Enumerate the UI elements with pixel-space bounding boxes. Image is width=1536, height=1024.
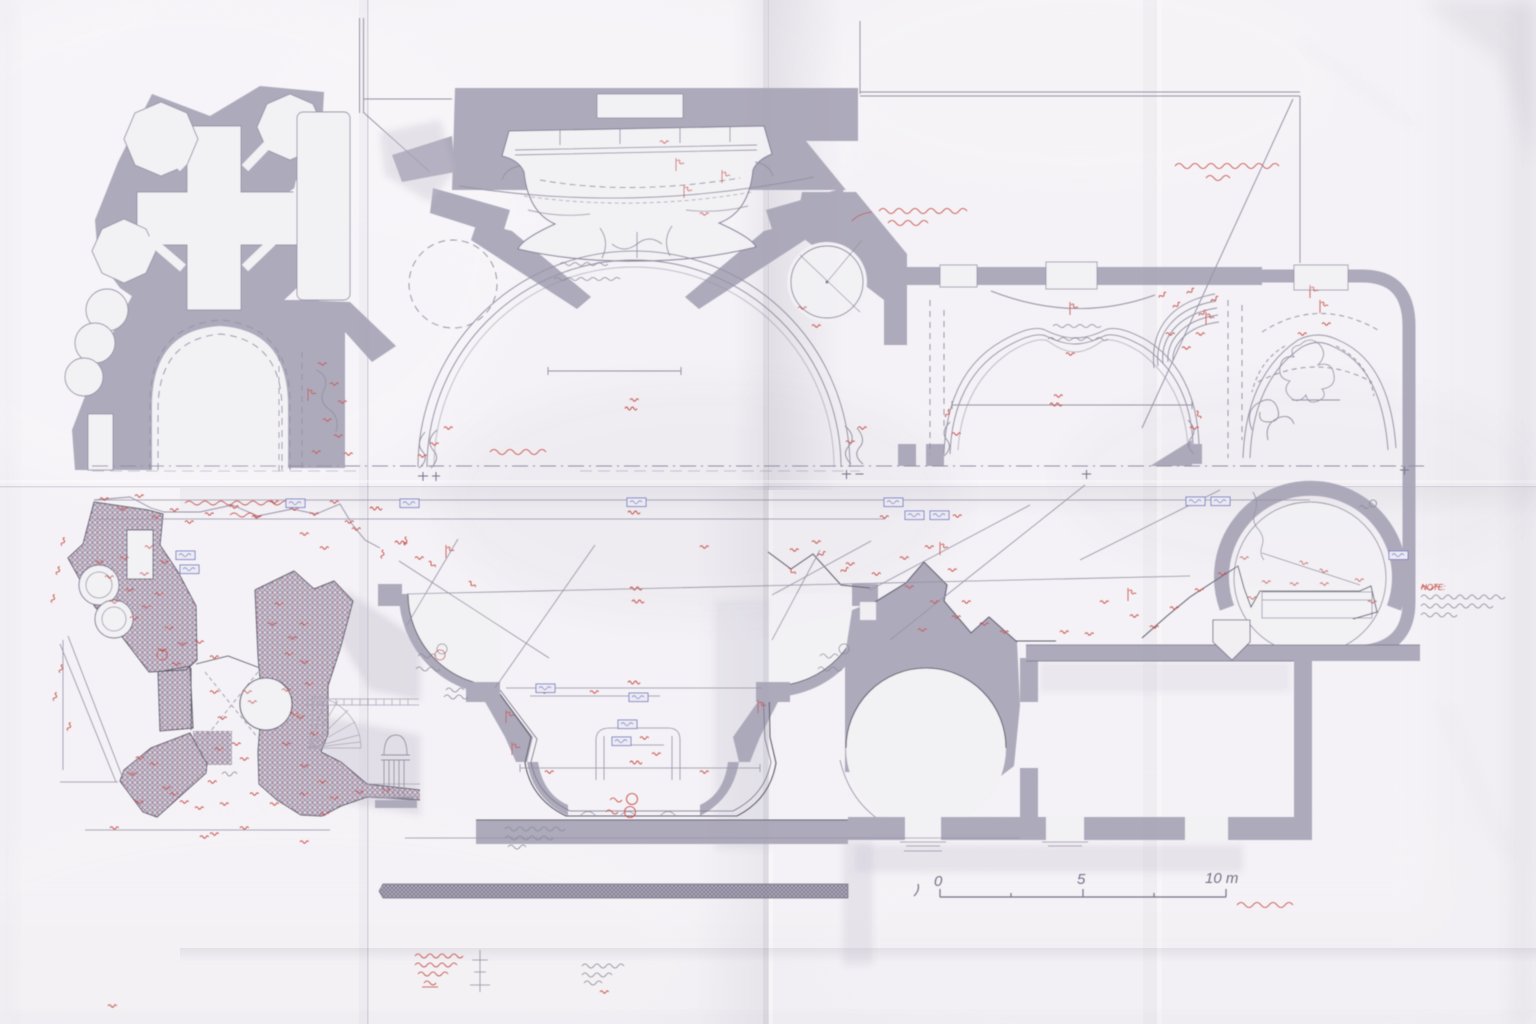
svg-text:0: 0: [934, 873, 943, 890]
svg-text:NOTE:: NOTE:: [1421, 583, 1445, 592]
svg-text:10 m: 10 m: [1205, 870, 1238, 887]
svg-text:5: 5: [1077, 871, 1086, 888]
